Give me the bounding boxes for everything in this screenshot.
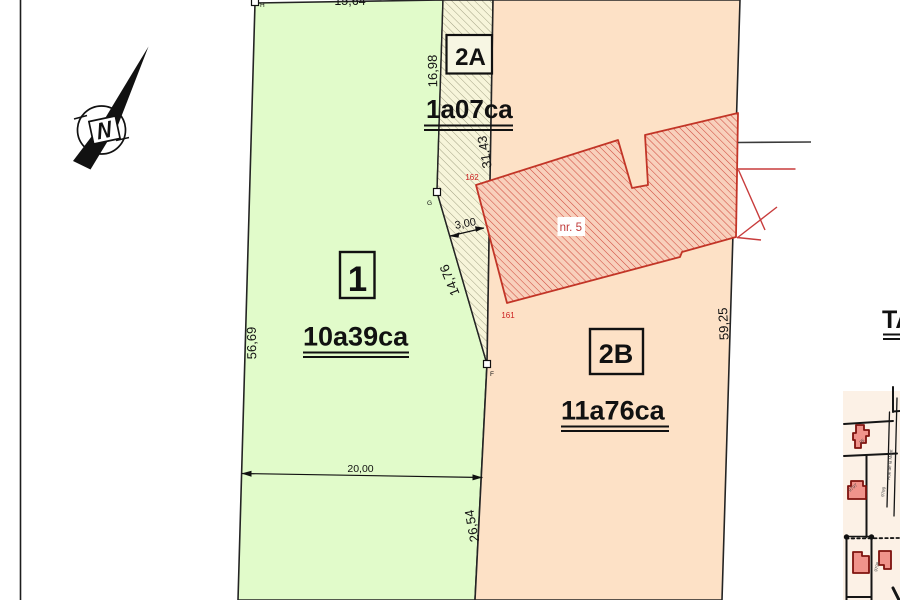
svg-text:162: 162 — [465, 173, 479, 182]
svg-text:1a07ca: 1a07ca — [426, 94, 513, 124]
svg-text:56,69: 56,69 — [244, 327, 260, 360]
svg-text:20,00: 20,00 — [347, 463, 373, 475]
svg-text:15,64: 15,64 — [334, 0, 365, 8]
svg-text:16,98: 16,98 — [425, 55, 441, 88]
svg-text:161: 161 — [501, 311, 515, 320]
svg-text:G: G — [427, 200, 432, 207]
svg-text:TAB: TAB — [882, 306, 900, 334]
svg-text:2B: 2B — [599, 339, 634, 369]
svg-text:2A: 2A — [455, 44, 486, 71]
svg-text:11a76ca: 11a76ca — [561, 396, 666, 426]
svg-text:10a39ca: 10a39ca — [303, 322, 409, 352]
svg-text:nr. 5: nr. 5 — [560, 222, 582, 234]
svg-text:F: F — [490, 371, 494, 378]
svg-text:59,25: 59,25 — [715, 307, 732, 340]
svg-text:H: H — [260, 2, 265, 9]
svg-text:1: 1 — [348, 260, 367, 299]
